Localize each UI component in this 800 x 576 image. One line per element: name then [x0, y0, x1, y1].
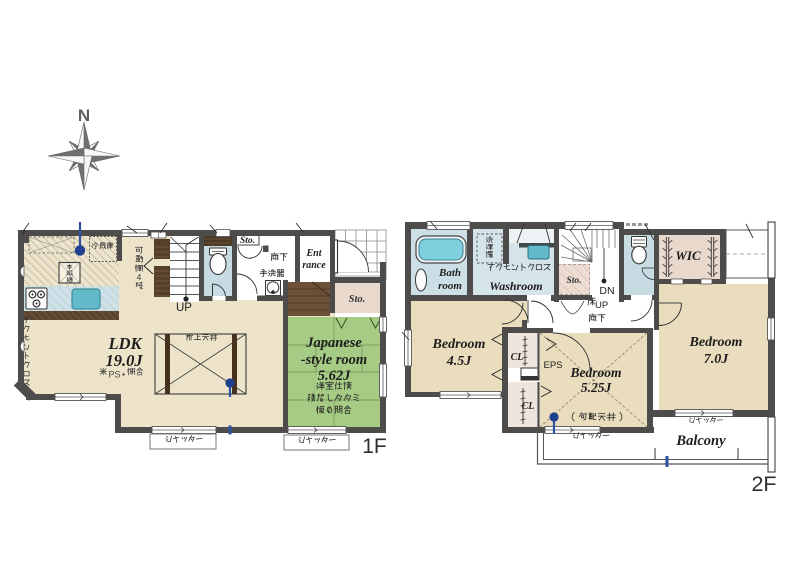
svg-text:4.5J: 4.5J	[446, 354, 473, 369]
svg-text:19.0J: 19.0J	[105, 351, 143, 370]
svg-text:Bedroom: Bedroom	[569, 365, 621, 380]
svg-text:5.25J: 5.25J	[581, 380, 613, 395]
svg-text:Sto.: Sto.	[566, 276, 581, 286]
svg-text:PS: PS	[108, 370, 120, 380]
svg-text:UP: UP	[176, 302, 192, 314]
svg-text:2F: 2F	[751, 472, 776, 496]
svg-text:Washroom: Washroom	[489, 279, 542, 293]
svg-text:Bedroom: Bedroom	[689, 335, 743, 350]
svg-text:4: 4	[137, 272, 142, 282]
svg-text:CL: CL	[511, 352, 524, 363]
svg-text:EPS: EPS	[543, 360, 562, 371]
svg-text:5.62J: 5.62J	[318, 368, 351, 384]
svg-text:Sto.: Sto.	[240, 236, 255, 246]
svg-text:Sto.: Sto.	[349, 294, 366, 305]
svg-text:1F: 1F	[362, 435, 387, 458]
svg-text:-style room: -style room	[301, 352, 367, 368]
svg-text:N: N	[78, 106, 90, 125]
svg-text:7.0J: 7.0J	[704, 352, 730, 367]
svg-text:Japanese: Japanese	[305, 335, 362, 351]
svg-text:WIC: WIC	[675, 248, 701, 263]
svg-text:Ent: Ent	[305, 248, 322, 259]
svg-text:UP: UP	[595, 300, 608, 311]
svg-text:DN: DN	[599, 285, 614, 297]
svg-text:CL: CL	[522, 401, 535, 412]
svg-text:room: room	[438, 280, 462, 292]
svg-text:Balcony: Balcony	[675, 433, 726, 449]
svg-text:Bath: Bath	[438, 267, 461, 279]
svg-text:Bedroom: Bedroom	[432, 337, 486, 352]
svg-text:rance: rance	[302, 260, 326, 271]
